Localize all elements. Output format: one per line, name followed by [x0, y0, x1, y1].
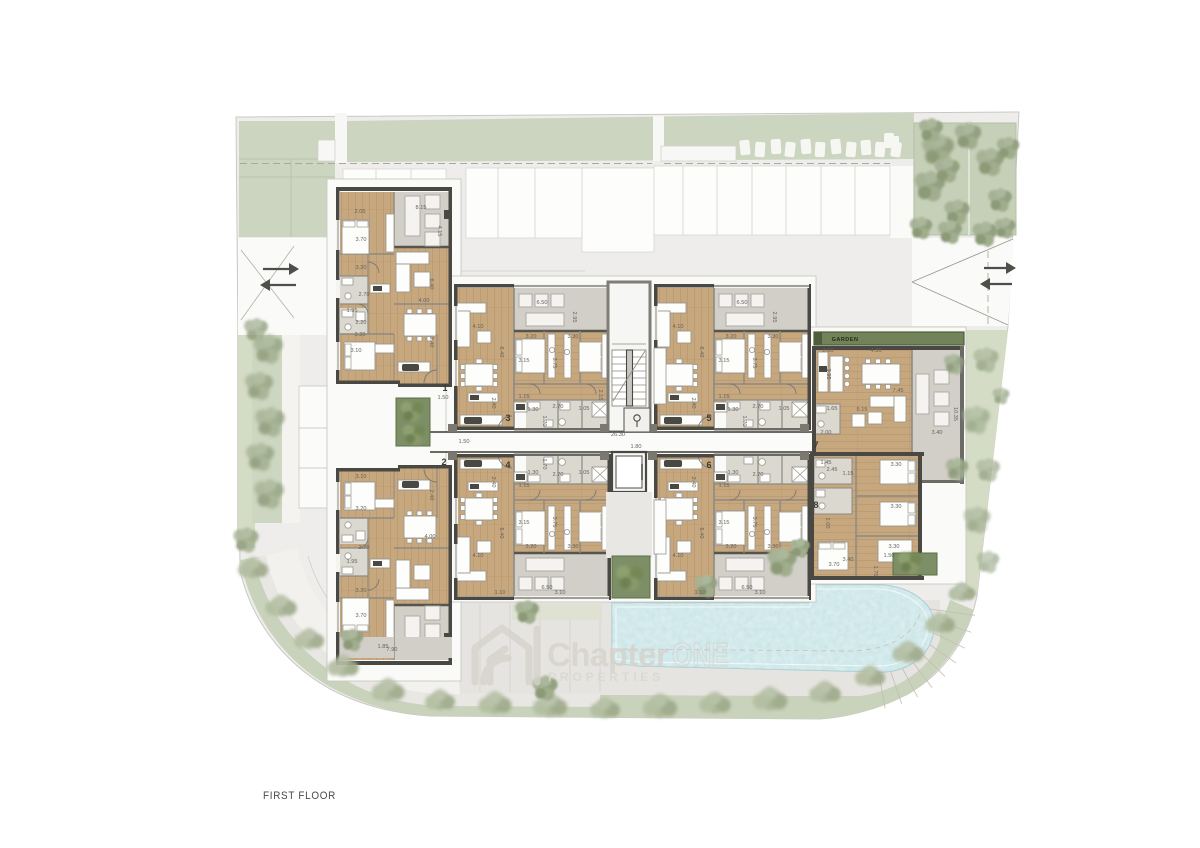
svg-text:1.50: 1.50 [459, 439, 470, 445]
svg-text:3.20: 3.20 [355, 332, 366, 338]
svg-text:1.50: 1.50 [438, 395, 449, 401]
svg-text:3.75: 3.75 [751, 358, 757, 369]
svg-text:3.95: 3.95 [825, 369, 831, 380]
svg-text:Chapter: Chapter [547, 636, 669, 673]
svg-text:3.10: 3.10 [755, 590, 766, 596]
svg-text:3.30: 3.30 [889, 544, 900, 550]
svg-text:4.10: 4.10 [473, 553, 484, 559]
svg-text:10.35: 10.35 [952, 407, 958, 421]
svg-text:3.10: 3.10 [555, 590, 566, 596]
svg-text:3.70: 3.70 [356, 237, 367, 243]
svg-text:1.30: 1.30 [528, 470, 539, 476]
svg-text:4.15: 4.15 [436, 226, 442, 237]
svg-text:1.15: 1.15 [519, 483, 530, 489]
svg-text:3.10: 3.10 [351, 348, 362, 354]
svg-text:2.40: 2.40 [428, 337, 434, 348]
svg-text:2.40: 2.40 [490, 398, 496, 409]
svg-text:2.40: 2.40 [428, 490, 434, 501]
svg-text:3.15: 3.15 [519, 358, 530, 364]
svg-text:1.15: 1.15 [719, 483, 730, 489]
svg-text:1.45: 1.45 [821, 460, 832, 466]
svg-text:1.15: 1.15 [519, 394, 530, 400]
svg-text:GARDEN: GARDEN [832, 337, 859, 343]
svg-text:1.05: 1.05 [779, 406, 790, 412]
svg-text:3.20: 3.20 [526, 544, 537, 550]
svg-text:2.60: 2.60 [823, 348, 834, 354]
svg-text:1.30: 1.30 [728, 407, 739, 413]
svg-text:1.70: 1.70 [541, 459, 547, 470]
svg-text:3.30: 3.30 [891, 462, 902, 468]
svg-text:3.20: 3.20 [726, 544, 737, 550]
svg-text:8.15: 8.15 [416, 205, 427, 211]
svg-text:6.40: 6.40 [698, 528, 704, 539]
svg-text:6.50: 6.50 [537, 300, 548, 306]
svg-text:8: 8 [813, 500, 818, 510]
svg-text:3.75: 3.75 [751, 517, 757, 528]
svg-text:2.95: 2.95 [771, 312, 777, 323]
svg-text:1.70: 1.70 [872, 566, 878, 577]
svg-text:3.20: 3.20 [526, 334, 537, 340]
svg-text:2.15: 2.15 [597, 390, 603, 401]
svg-text:4.00: 4.00 [419, 298, 430, 304]
svg-text:3.20: 3.20 [356, 506, 367, 512]
svg-text:1.85: 1.85 [378, 644, 389, 650]
svg-text:1.30: 1.30 [528, 407, 539, 413]
svg-text:3.70: 3.70 [356, 613, 367, 619]
svg-text:7.45: 7.45 [893, 388, 904, 394]
svg-text:2.70: 2.70 [553, 472, 564, 478]
svg-text:1.95: 1.95 [347, 308, 358, 314]
svg-text:2.70: 2.70 [553, 404, 564, 410]
svg-text:1.50: 1.50 [884, 553, 895, 559]
svg-text:6.50: 6.50 [737, 300, 748, 306]
svg-text:6.40: 6.40 [498, 528, 504, 539]
svg-text:3.30: 3.30 [568, 544, 579, 550]
svg-text:1.05: 1.05 [579, 470, 590, 476]
svg-text:6.40: 6.40 [428, 279, 434, 290]
svg-text:1.15: 1.15 [843, 471, 854, 477]
svg-text:3.75: 3.75 [551, 517, 557, 528]
svg-text:6.40: 6.40 [698, 347, 704, 358]
svg-text:2.05: 2.05 [355, 209, 366, 215]
svg-text:26.30: 26.30 [611, 432, 625, 438]
svg-text:ONE: ONE [672, 636, 729, 673]
svg-text:2.40: 2.40 [690, 398, 696, 409]
svg-text:1.70: 1.70 [741, 416, 747, 427]
svg-text:PROPERTIES: PROPERTIES [548, 670, 664, 684]
svg-text:3.40: 3.40 [843, 557, 854, 563]
svg-text:5: 5 [706, 413, 711, 423]
svg-text:3.20: 3.20 [356, 265, 367, 271]
svg-text:3.70: 3.70 [829, 562, 840, 568]
svg-text:1: 1 [442, 383, 447, 393]
svg-text:4.10: 4.10 [673, 324, 684, 330]
svg-text:2.40: 2.40 [690, 477, 696, 488]
svg-text:5.15: 5.15 [857, 407, 868, 413]
svg-text:2.70: 2.70 [359, 545, 370, 551]
svg-text:2.20: 2.20 [356, 320, 367, 326]
svg-text:3.15: 3.15 [519, 520, 530, 526]
svg-text:6.40: 6.40 [498, 347, 504, 358]
svg-text:4.10: 4.10 [473, 324, 484, 330]
svg-text:2.00: 2.00 [824, 518, 830, 529]
svg-text:1.30: 1.30 [728, 470, 739, 476]
svg-text:1.65: 1.65 [827, 406, 838, 412]
svg-text:3.30: 3.30 [768, 544, 779, 550]
svg-text:3.75: 3.75 [551, 358, 557, 369]
svg-text:4.00: 4.00 [425, 534, 436, 540]
svg-text:3.15: 3.15 [719, 520, 730, 526]
svg-text:1.15: 1.15 [719, 394, 730, 400]
svg-text:3.20: 3.20 [356, 588, 367, 594]
svg-text:4.10: 4.10 [673, 553, 684, 559]
svg-text:FIRST FLOOR: FIRST FLOOR [263, 790, 336, 802]
svg-text:6.50: 6.50 [542, 585, 553, 591]
svg-text:3.30: 3.30 [768, 334, 779, 340]
svg-text:3.20: 3.20 [726, 334, 737, 340]
svg-text:1.80: 1.80 [631, 444, 642, 450]
svg-text:3.40: 3.40 [932, 430, 943, 436]
svg-text:2.70: 2.70 [753, 472, 764, 478]
svg-text:4: 4 [505, 460, 510, 470]
svg-text:1.70: 1.70 [541, 416, 547, 427]
svg-text:3: 3 [505, 413, 510, 423]
svg-text:7: 7 [813, 440, 818, 450]
svg-text:1.05: 1.05 [579, 406, 590, 412]
svg-text:2.70: 2.70 [753, 404, 764, 410]
svg-text:3.30: 3.30 [891, 504, 902, 510]
svg-text:6: 6 [706, 460, 711, 470]
svg-text:6.50: 6.50 [742, 585, 753, 591]
svg-text:2.95: 2.95 [571, 312, 577, 323]
svg-text:2: 2 [441, 457, 446, 467]
svg-text:1.10: 1.10 [695, 590, 706, 596]
svg-text:3.30: 3.30 [568, 334, 579, 340]
svg-text:1.95: 1.95 [347, 559, 358, 565]
svg-text:3.10: 3.10 [356, 474, 367, 480]
svg-text:2.00: 2.00 [821, 430, 832, 436]
svg-text:2.40: 2.40 [490, 477, 496, 488]
svg-text:2.45: 2.45 [827, 467, 838, 473]
svg-text:2.70: 2.70 [359, 292, 370, 298]
svg-text:3.15: 3.15 [719, 358, 730, 364]
svg-text:1.10: 1.10 [495, 590, 506, 596]
svg-text:4.30: 4.30 [871, 348, 882, 354]
